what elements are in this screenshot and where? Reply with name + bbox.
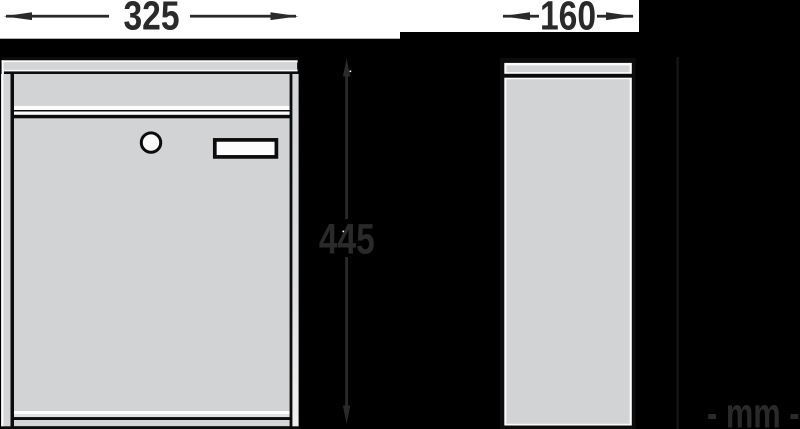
svg-text:160: 160 [540, 0, 596, 38]
svg-text:325: 325 [123, 0, 179, 38]
svg-text:445: 445 [319, 216, 375, 264]
svg-text:- mm -: - mm - [707, 390, 800, 429]
